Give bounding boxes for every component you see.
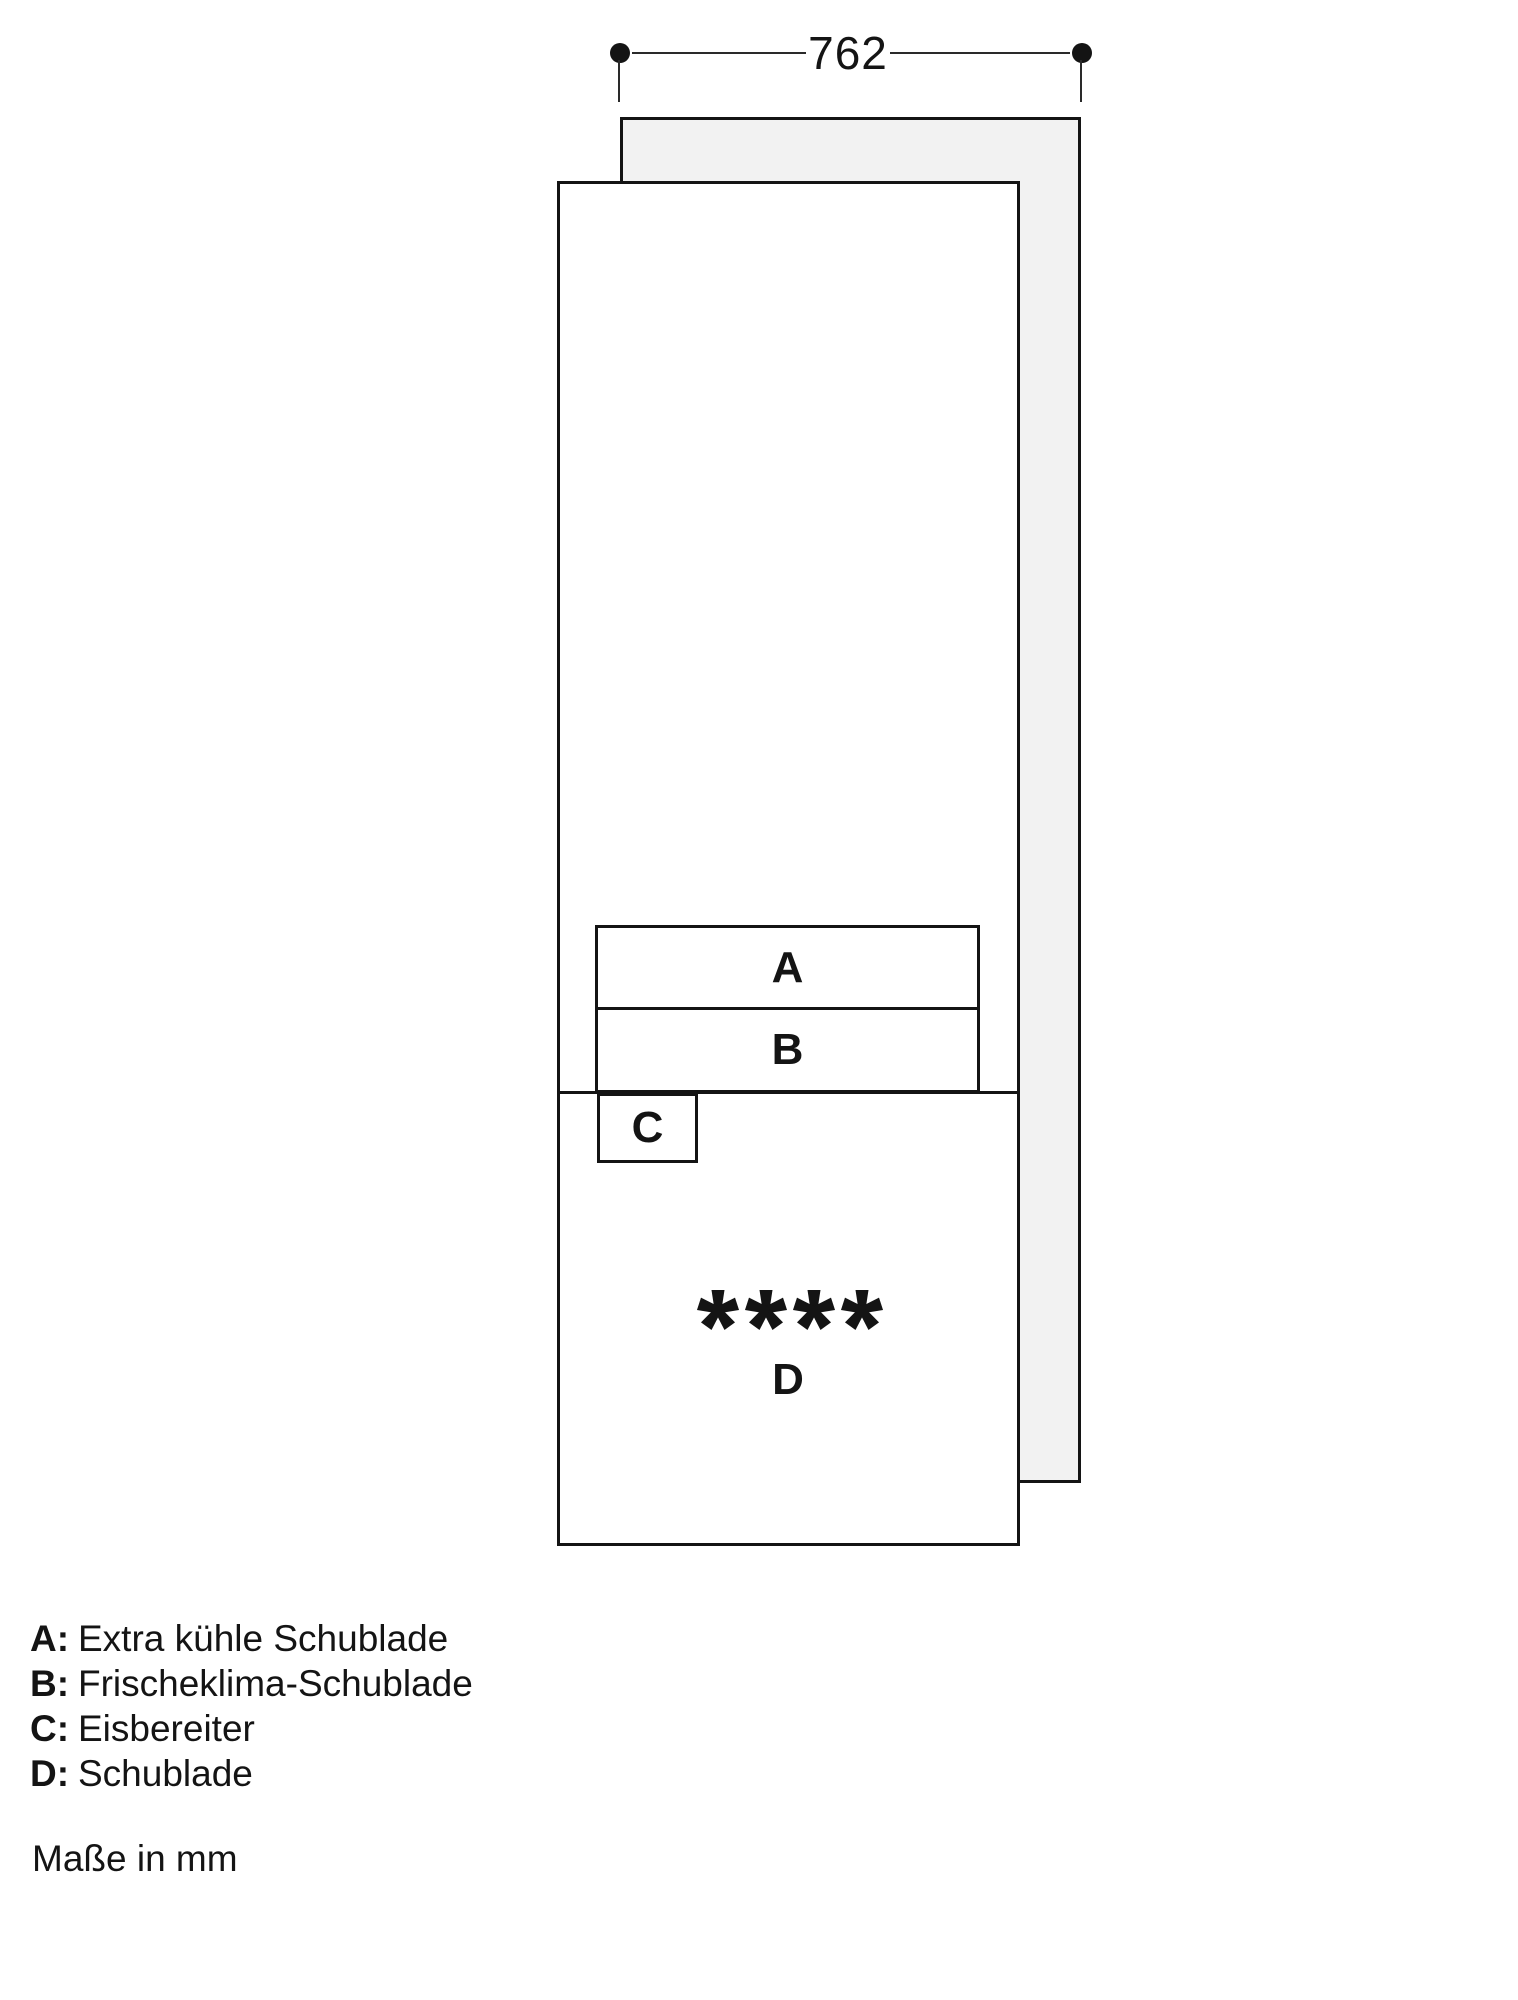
compartment-b-label: B (772, 1028, 804, 1072)
freezer-star-icon (745, 1290, 787, 1330)
dimension-line-right-segment (890, 52, 1070, 54)
dimension-line-left-segment (632, 52, 806, 54)
extension-line-left (618, 60, 620, 102)
legend-item-d: D:Schublade (30, 1751, 473, 1796)
appliance-front-outline (557, 181, 1020, 1546)
compartment-a-box: A (595, 925, 980, 1010)
legend-item-b: B:Frischeklima-Schublade (30, 1661, 473, 1706)
freezer-four-star-rating-icon (691, 1284, 889, 1336)
legend: A:Extra kühle Schublade B:Frischeklima-S… (30, 1616, 473, 1796)
compartment-b-box: B (595, 1010, 980, 1093)
compartment-d-label: D (738, 1358, 838, 1402)
legend-text-c: Eisbereiter (78, 1708, 255, 1749)
legend-key-b: B: (30, 1661, 78, 1706)
legend-key-a: A: (30, 1616, 78, 1661)
dimension-value: 762 (788, 30, 908, 76)
dimension-endpoint-dot-right (1072, 43, 1092, 63)
legend-text-b: Frischeklima-Schublade (78, 1663, 473, 1704)
legend-text-a: Extra kühle Schublade (78, 1618, 448, 1659)
legend-key-c: C: (30, 1706, 78, 1751)
legend-text-d: Schublade (78, 1753, 253, 1794)
extension-line-right (1080, 60, 1082, 102)
legend-item-a: A:Extra kühle Schublade (30, 1616, 473, 1661)
freezer-star-icon (841, 1290, 883, 1330)
compartment-c-label: C (632, 1106, 664, 1150)
freezer-star-icon (697, 1290, 739, 1330)
appliance-dimension-diagram: 762 A B C (0, 0, 1518, 2000)
freezer-star-icon (793, 1290, 835, 1330)
units-note: Maße in mm (32, 1838, 238, 1880)
legend-key-d: D: (30, 1751, 78, 1796)
compartment-c-box: C (597, 1093, 698, 1163)
compartment-a-label: A (772, 946, 804, 990)
legend-item-c: C:Eisbereiter (30, 1706, 473, 1751)
dimension-endpoint-dot-left (610, 43, 630, 63)
